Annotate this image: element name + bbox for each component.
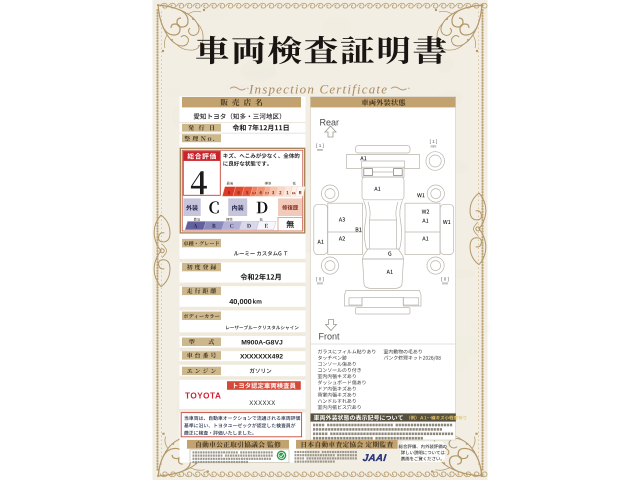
svg-text:JAAI: JAAI <box>362 453 387 464</box>
svg-text:Front: Front <box>319 332 341 342</box>
svg-text:XXXXXX: XXXXXX <box>249 401 275 407</box>
svg-text:TOYOTA: TOYOTA <box>185 391 221 400</box>
svg-text:Inspection Certificate: Inspection Certificate <box>248 82 387 97</box>
svg-text:M900A-G8VJ: M900A-G8VJ <box>241 340 283 347</box>
svg-text:mm: mm <box>317 282 323 286</box>
svg-text:mm: mm <box>442 282 448 286</box>
svg-text:40,000: 40,000 <box>229 297 252 306</box>
svg-text:Rear: Rear <box>320 118 340 128</box>
svg-text:mm: mm <box>317 148 323 152</box>
svg-text:mm: mm <box>431 144 437 148</box>
svg-text:XXXXXXX492: XXXXXXX492 <box>240 353 283 360</box>
